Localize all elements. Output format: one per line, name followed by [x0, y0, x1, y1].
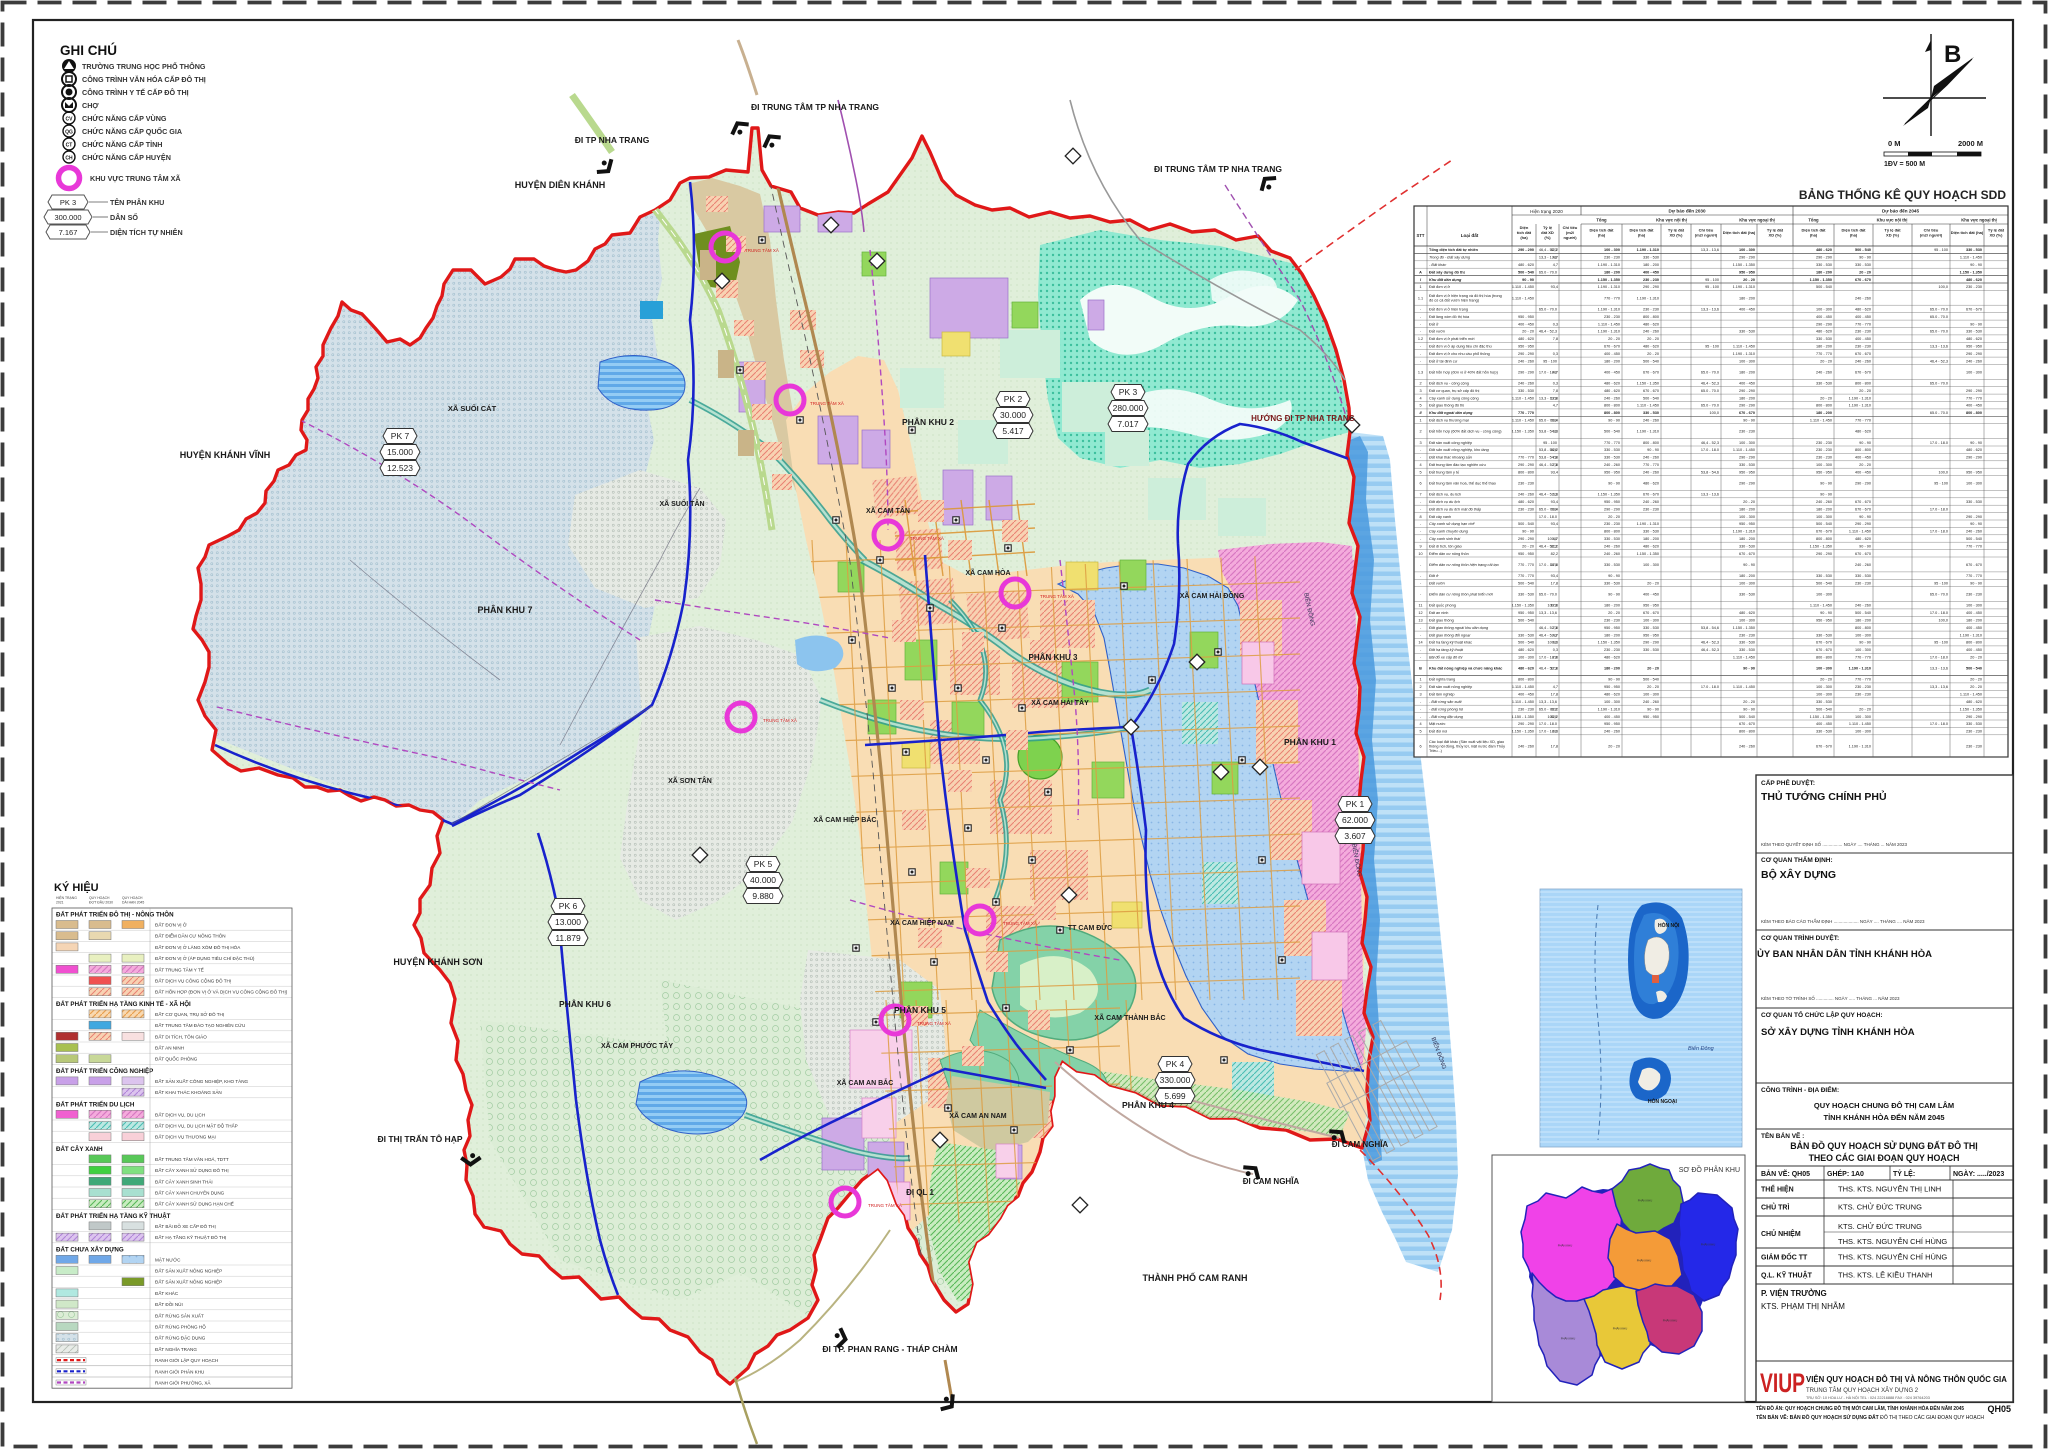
svg-text:480 - 620: 480 - 620 [1518, 648, 1534, 652]
svg-text:20 - 20: 20 - 20 [1820, 359, 1832, 363]
svg-text:400 - 450: 400 - 450 [1855, 456, 1871, 460]
svg-text:240 - 260: 240 - 260 [1604, 396, 1620, 400]
svg-text:1.190 - 1.310: 1.190 - 1.310 [1733, 530, 1755, 534]
svg-text:500 - 540: 500 - 540 [1643, 396, 1659, 400]
svg-text:Dự báo đến 2030: Dự báo đến 2030 [1668, 208, 1705, 214]
svg-text:- Đất rừng sản xuất: - Đất rừng sản xuất [1429, 700, 1463, 704]
svg-text:950 - 950: 950 - 950 [1739, 470, 1755, 474]
svg-text:46,4 - 52,3: 46,4 - 52,3 [1701, 648, 1719, 652]
svg-text:3: 3 [1419, 693, 1421, 697]
svg-text:1.190 - 1.310: 1.190 - 1.310 [1849, 744, 1871, 748]
svg-text:PHÂN KHU: PHÂN KHU [1561, 1336, 1575, 1341]
svg-text:0,3: 0,3 [1553, 430, 1558, 434]
svg-text:65.0 - 70.0: 65.0 - 70.0 [1539, 270, 1557, 274]
svg-text:THS. KTS. NGUYỄN CHÍ HÙNG: THS. KTS. NGUYỄN CHÍ HÙNG [1838, 1253, 1947, 1262]
svg-text:(ha): (ha) [1810, 233, 1818, 238]
svg-text:480 - 620: 480 - 620 [1966, 337, 1982, 341]
svg-text:17,8: 17,8 [1551, 604, 1558, 608]
svg-text:65.0 - 70.0: 65.0 - 70.0 [1701, 389, 1719, 393]
svg-text:65.0 - 70.0: 65.0 - 70.0 [1539, 307, 1557, 311]
svg-text:90 - 90: 90 - 90 [1522, 530, 1534, 534]
svg-text:800 - 800: 800 - 800 [1966, 411, 1982, 415]
svg-text:ĐẤT CÂY XANH CHUYÊN DỤNG: ĐẤT CÂY XANH CHUYÊN DỤNG [155, 1189, 225, 1196]
svg-text:PHÂN KHU 7: PHÂN KHU 7 [477, 604, 532, 615]
svg-text:TÊN BẢN VẼ :: TÊN BẢN VẼ : [1761, 1131, 1804, 1140]
svg-text:800 - 800: 800 - 800 [1604, 411, 1620, 415]
svg-text:950 - 950: 950 - 950 [1816, 618, 1832, 622]
svg-text:230 - 230: 230 - 230 [1518, 507, 1534, 511]
svg-text:1.110 - 1.450: 1.110 - 1.450 [1733, 448, 1755, 452]
svg-text:1.110 - 1.450: 1.110 - 1.450 [1512, 285, 1534, 289]
svg-text:20 - 20: 20 - 20 [1970, 656, 1982, 660]
svg-text:Các loại đất khác (Sản xuất vậ: Các loại đất khác (Sản xuất vật liệu XD,… [1429, 740, 1504, 744]
svg-text:53,8 - 54,6: 53,8 - 54,6 [1701, 626, 1719, 630]
svg-text:ĐẤT PHÁT TRIỂN CÔNG NGHIỆP: ĐẤT PHÁT TRIỂN CÔNG NGHIỆP [56, 1067, 153, 1075]
svg-text:HUYỆN KHÁNH SƠN: HUYỆN KHÁNH SƠN [393, 956, 482, 967]
svg-text:240 - 260: 240 - 260 [1518, 359, 1534, 363]
svg-text:330 - 530: 330 - 530 [1643, 256, 1659, 260]
svg-text:KTS. CHỬ ĐỨC TRUNG: KTS. CHỬ ĐỨC TRUNG [1838, 1203, 1922, 1212]
svg-text:Điểm dân cư nông thôn hiện trạ: Điểm dân cư nông thôn hiện trạng cải tạo [1429, 563, 1499, 567]
svg-text:180 - 200: 180 - 200 [1739, 296, 1755, 300]
svg-text:500 - 540: 500 - 540 [1518, 641, 1534, 645]
svg-text:ĐẤT TRUNG TÂM ĐÀO TẠO NGHIÊN C: ĐẤT TRUNG TÂM ĐÀO TẠO NGHIÊN CỨU [155, 1021, 245, 1028]
svg-text:100,0: 100,0 [1938, 470, 1948, 474]
svg-text:290 - 290: 290 - 290 [1518, 248, 1534, 252]
svg-text:PHÂN KHU 1: PHÂN KHU 1 [1284, 736, 1336, 747]
svg-text:480 - 620: 480 - 620 [1643, 544, 1659, 548]
svg-text:480 - 620: 480 - 620 [1604, 656, 1620, 660]
svg-text:670 - 670: 670 - 670 [1816, 648, 1832, 652]
svg-text:TRUNG TÂM XÃ: TRUNG TÂM XÃ [910, 535, 944, 541]
svg-text:400 - 450: 400 - 450 [1643, 270, 1659, 274]
svg-text:950 - 950: 950 - 950 [1518, 315, 1534, 319]
svg-text:CÔNG TRÌNH VĂN HÓA CẤP ĐÔ THỊ: CÔNG TRÌNH VĂN HÓA CẤP ĐÔ THỊ [82, 74, 206, 84]
svg-text:950 - 950: 950 - 950 [1643, 604, 1659, 608]
svg-text:330.000: 330.000 [1160, 1075, 1191, 1085]
svg-text:6: 6 [1419, 744, 1421, 748]
svg-text:Đất di tích, tôn giáo: Đất di tích, tôn giáo [1429, 544, 1462, 548]
svg-text:ĐẤT DỊCH VỤ, DU LỊCH MẬT ĐỘ TH: ĐẤT DỊCH VỤ, DU LỊCH MẬT ĐỘ THẤP [155, 1123, 238, 1129]
svg-text:240 - 260: 240 - 260 [1604, 463, 1620, 467]
svg-text:95 - 100: 95 - 100 [1934, 581, 1948, 585]
svg-text:230 - 230: 230 - 230 [1816, 456, 1832, 460]
svg-text:Đất đơn vị ở cho nhu cầu phổ t: Đất đơn vị ở cho nhu cầu phổ thông [1429, 352, 1490, 356]
svg-text:A: A [1419, 270, 1422, 274]
svg-text:HUYỆN DIÊN KHÁNH: HUYỆN DIÊN KHÁNH [515, 179, 606, 190]
svg-text:330 - 530: 330 - 530 [1855, 574, 1871, 578]
svg-text:180 - 200: 180 - 200 [1739, 537, 1755, 541]
svg-text:đó có cả đất vườn hiện trạng): đó có cả đất vườn hiện trạng) [1429, 299, 1480, 303]
svg-text:Khu vực nội thị: Khu vực nội thị [1877, 218, 1908, 223]
svg-text:1.190 - 1.310: 1.190 - 1.310 [1637, 296, 1659, 300]
svg-text:Hiện trạng 2020: Hiện trạng 2020 [1530, 209, 1563, 214]
svg-text:- Đất khác: - Đất khác [1429, 263, 1446, 267]
svg-text:290 - 290: 290 - 290 [1604, 507, 1620, 511]
svg-text:Tổng: Tổng [1808, 218, 1819, 223]
svg-text:90 - 90: 90 - 90 [1970, 581, 1982, 585]
svg-text:230 - 230: 230 - 230 [1518, 707, 1534, 711]
svg-text:330 - 530: 330 - 530 [1966, 500, 1982, 504]
svg-text:2: 2 [1419, 430, 1421, 434]
svg-text:Đất dịch vụ, du lịch: Đất dịch vụ, du lịch [1429, 493, 1461, 497]
svg-text:100 - 300: 100 - 300 [1604, 248, 1620, 252]
svg-text:1.190 - 1.310: 1.190 - 1.310 [1637, 248, 1659, 252]
svg-text:93,4: 93,4 [1551, 507, 1558, 511]
svg-text:180 - 200: 180 - 200 [1739, 507, 1755, 511]
svg-text:PK 2: PK 2 [1004, 394, 1023, 404]
svg-text:500 - 540: 500 - 540 [1643, 359, 1659, 363]
svg-text:500 - 540: 500 - 540 [1604, 430, 1620, 434]
svg-text:1.150 - 1.350: 1.150 - 1.350 [1637, 552, 1659, 556]
svg-text:290 - 290: 290 - 290 [1739, 256, 1755, 260]
svg-text:ĐẤT PHÁT TRIỂN HẠ TẦNG KINH TẾ: ĐẤT PHÁT TRIỂN HẠ TẦNG KINH TẾ - XÃ HỘI [56, 1000, 191, 1008]
svg-text:100 - 300: 100 - 300 [1855, 730, 1871, 734]
svg-text:ĐẤT HỖN HỢP (ĐƠN VỊ Ở VÀ DỊCH: ĐẤT HỖN HỢP (ĐƠN VỊ Ở VÀ DỊCH VỤ CÔNG CỘ… [155, 989, 288, 995]
svg-text:290 - 290: 290 - 290 [1966, 456, 1982, 460]
svg-text:ĐI CAM NGHĨA: ĐI CAM NGHĨA [1243, 1177, 1300, 1186]
svg-text:17.0 - 18.0: 17.0 - 18.0 [1701, 448, 1719, 452]
svg-text:1.190 - 1.310: 1.190 - 1.310 [1598, 263, 1620, 267]
svg-text:240 - 260: 240 - 260 [1643, 456, 1659, 460]
svg-text:Đất đơn vị ở: Đất đơn vị ở [1429, 285, 1451, 289]
svg-text:ĐỢT ĐẦU 2030: ĐỢT ĐẦU 2030 [89, 901, 113, 905]
svg-text:500 - 540: 500 - 540 [1966, 667, 1982, 671]
svg-text:XÃ CAM THÀNH BẮC: XÃ CAM THÀNH BẮC [1094, 1013, 1165, 1022]
svg-text:15.000: 15.000 [387, 447, 413, 457]
svg-text:CT: CT [66, 143, 73, 149]
svg-text:240 - 260: 240 - 260 [1518, 382, 1534, 386]
svg-text:2021: 2021 [56, 901, 64, 905]
svg-text:17,8: 17,8 [1551, 744, 1558, 748]
svg-text:290 - 290: 290 - 290 [1518, 370, 1534, 374]
svg-text:950 - 950: 950 - 950 [1604, 626, 1620, 630]
svg-text:400 - 450: 400 - 450 [1604, 352, 1620, 356]
svg-text:330 - 530: 330 - 530 [1643, 648, 1659, 652]
svg-text:Đất nghĩa trang: Đất nghĩa trang [1429, 678, 1455, 682]
svg-text:800 - 800: 800 - 800 [1739, 730, 1755, 734]
svg-text:1.190 - 1.310: 1.190 - 1.310 [1733, 352, 1755, 356]
svg-text:HÒN NGOẠI: HÒN NGOẠI [1648, 1097, 1678, 1105]
svg-text:290 - 290: 290 - 290 [1739, 456, 1755, 460]
svg-text:ĐI QL 1: ĐI QL 1 [906, 1188, 934, 1197]
svg-text:Đất đơn vị ở hiện trạng và đô: Đất đơn vị ở hiện trạng và đô thị hóa (t… [1429, 294, 1502, 298]
svg-text:90 - 90: 90 - 90 [1608, 574, 1620, 578]
svg-text:1.150 - 1.350: 1.150 - 1.350 [1512, 604, 1534, 608]
svg-text:ĐẤT TRUNG TÂM Y TẾ: ĐẤT TRUNG TÂM Y TẾ [155, 966, 204, 972]
svg-text:1.150 - 1.350: 1.150 - 1.350 [1810, 278, 1832, 282]
svg-text:670 - 670: 670 - 670 [1643, 370, 1659, 374]
svg-text:Cây xanh sử dụng hạn chế: Cây xanh sử dụng hạn chế [1429, 522, 1475, 526]
svg-text:Đất ở tái định cư: Đất ở tái định cư [1429, 359, 1458, 363]
svg-text:1.110 - 1.450: 1.110 - 1.450 [1512, 419, 1534, 423]
svg-text:Dự báo đến 2045: Dự báo đến 2045 [1882, 208, 1919, 214]
svg-text:240 - 260: 240 - 260 [1855, 359, 1871, 363]
svg-text:330 - 530: 330 - 530 [1643, 626, 1659, 630]
svg-text:290 - 290: 290 - 290 [1739, 404, 1755, 408]
svg-text:90 - 90: 90 - 90 [1608, 419, 1620, 423]
svg-text:1.3: 1.3 [1418, 370, 1423, 374]
svg-text:230 - 230: 230 - 230 [1604, 522, 1620, 526]
svg-text:1.150 - 1.350: 1.150 - 1.350 [1810, 544, 1832, 548]
svg-text:90 - 90: 90 - 90 [1608, 678, 1620, 682]
svg-text:STT: STT [1417, 233, 1425, 238]
svg-text:XÃ CAM HIỆP BẮC: XÃ CAM HIỆP BẮC [814, 815, 877, 824]
svg-text:100 - 300: 100 - 300 [1643, 563, 1659, 567]
svg-text:PK 1: PK 1 [1346, 799, 1365, 809]
svg-text:290 - 290: 290 - 290 [1518, 537, 1534, 541]
svg-text:90 - 90: 90 - 90 [1970, 263, 1982, 267]
svg-text:950 - 950: 950 - 950 [1966, 344, 1982, 348]
svg-text:ỦY BAN NHÂN DÂN TỈNH KHÁNH HÒA: ỦY BAN NHÂN DÂN TỈNH KHÁNH HÒA [1757, 948, 1932, 960]
svg-text:TRUNG TÂM QUY HOẠCH XÂY DỰNG 2: TRUNG TÂM QUY HOẠCH XÂY DỰNG 2 [1806, 1387, 1919, 1394]
svg-text:ĐẤT CÂY XANH SỬ DỤNG HẠN CHẾ: ĐẤT CÂY XANH SỬ DỤNG HẠN CHẾ [155, 1201, 234, 1207]
svg-text:0,3: 0,3 [1553, 648, 1558, 652]
svg-text:THỦ TƯỚNG CHÍNH PHỦ: THỦ TƯỚNG CHÍNH PHỦ [1761, 790, 1887, 803]
svg-text:480 - 620: 480 - 620 [1604, 382, 1620, 386]
svg-text:Khu vực ngoại thị: Khu vực ngoại thị [1739, 218, 1775, 223]
svg-text:TRUNG TÂM XÃ: TRUNG TÂM XÃ [917, 1020, 951, 1026]
svg-text:ĐI THỊ TRẤN TÔ HẠP: ĐI THỊ TRẤN TÔ HẠP [378, 1133, 463, 1144]
svg-text:13,3 - 13,6: 13,3 - 13,6 [1930, 667, 1948, 671]
svg-text:670 - 670: 670 - 670 [1739, 411, 1755, 415]
svg-text:290 - 290: 290 - 290 [1518, 463, 1534, 467]
svg-text:4,7: 4,7 [1553, 633, 1558, 637]
svg-text:1.150 - 1.350: 1.150 - 1.350 [1733, 263, 1755, 267]
svg-text:Đất đơn vị ở áp dụng tiêu chí: Đất đơn vị ở áp dụng tiêu chí đặc thù [1429, 344, 1492, 348]
svg-text:KÈM THEO QUYẾT ĐỊNH SỐ .......: KÈM THEO QUYẾT ĐỊNH SỐ ................ … [1761, 841, 1907, 847]
svg-text:240 - 260: 240 - 260 [1816, 500, 1832, 504]
svg-text:950 - 950: 950 - 950 [1643, 715, 1659, 719]
svg-text:230 - 230: 230 - 230 [1855, 685, 1871, 689]
svg-text:240 - 260: 240 - 260 [1518, 493, 1534, 497]
svg-text:90 - 90: 90 - 90 [1820, 493, 1832, 497]
svg-text:20 - 20: 20 - 20 [1859, 463, 1871, 467]
svg-text:950 - 950: 950 - 950 [1739, 270, 1755, 274]
svg-text:ĐẤT QUỐC PHÒNG: ĐẤT QUỐC PHÒNG [155, 1056, 198, 1062]
svg-text:95 - 100: 95 - 100 [1705, 278, 1719, 282]
svg-text:330 - 530: 330 - 530 [1816, 574, 1832, 578]
svg-text:13,3 - 13,6: 13,3 - 13,6 [1701, 307, 1719, 311]
svg-text:PK 6: PK 6 [559, 901, 578, 911]
svg-text:180 - 200: 180 - 200 [1604, 633, 1620, 637]
svg-text:770 - 770: 770 - 770 [1518, 563, 1534, 567]
svg-text:950 - 950: 950 - 950 [1518, 611, 1534, 615]
svg-text:670 - 670: 670 - 670 [1739, 552, 1755, 556]
svg-text:90 - 90: 90 - 90 [1820, 611, 1832, 615]
svg-text:TRUNG TÂM XÃ: TRUNG TÂM XÃ [745, 247, 779, 253]
svg-text:1.110 - 1.450: 1.110 - 1.450 [1512, 396, 1534, 400]
svg-text:12.523: 12.523 [387, 463, 413, 473]
svg-text:XÃ CAM HIỆP NAM: XÃ CAM HIỆP NAM [890, 918, 954, 927]
svg-text:480 - 620: 480 - 620 [1643, 322, 1659, 326]
svg-text:90 - 90: 90 - 90 [1647, 448, 1659, 452]
svg-text:(ha): (ha) [1598, 233, 1606, 238]
svg-text:330 - 530: 330 - 530 [1518, 593, 1534, 597]
svg-text:7.167: 7.167 [59, 228, 78, 237]
svg-text:1.150 - 1.350: 1.150 - 1.350 [1810, 715, 1832, 719]
svg-text:65.0 - 70.0: 65.0 - 70.0 [1930, 411, 1948, 415]
svg-text:90 - 90: 90 - 90 [1859, 544, 1871, 548]
svg-text:7,8: 7,8 [1553, 626, 1558, 630]
svg-text:90 - 90: 90 - 90 [1743, 563, 1755, 567]
svg-text:400 - 450: 400 - 450 [1604, 715, 1620, 719]
svg-text:TRUNG TÂM XÃ: TRUNG TÂM XÃ [868, 1202, 902, 1208]
svg-text:290 - 290: 290 - 290 [1518, 722, 1534, 726]
svg-text:1.150 - 1.350: 1.150 - 1.350 [1598, 278, 1620, 282]
svg-text:480 - 620: 480 - 620 [1518, 667, 1534, 671]
svg-text:ĐẤT SẢN XUẤT CÔNG NGHIỆP, KHO: ĐẤT SẢN XUẤT CÔNG NGHIỆP, KHO TÀNG [155, 1077, 249, 1084]
svg-text:XD (%): XD (%) [1886, 233, 1900, 238]
svg-text:XÃ CAM PHƯỚC TÂY: XÃ CAM PHƯỚC TÂY [601, 1041, 673, 1050]
svg-text:DÀI HẠN 2045: DÀI HẠN 2045 [122, 901, 144, 905]
svg-text:Đất giao thông đối ngoại: Đất giao thông đối ngoại [1429, 633, 1470, 637]
svg-text:Khu đất nông nghiệp và chức nă: Khu đất nông nghiệp và chức năng khác [1429, 667, 1502, 671]
svg-text:TRỤ SỞ: 10 HOA LƯ - HÀ NỘI T: TRỤ SỞ: 10 HOA LƯ - HÀ NỘI TEL : 024 222… [1806, 1395, 1930, 1400]
svg-text:7,8: 7,8 [1553, 456, 1558, 460]
svg-text:BẢN ĐỒ QUY HOẠCH SỬ DỤNG ĐẤT Đ: BẢN ĐỒ QUY HOẠCH SỬ DỤNG ĐẤT ĐÔ THỊ [1790, 1140, 1977, 1151]
svg-text:(m2/ người): (m2/ người) [1920, 233, 1943, 238]
svg-text:XÃ CAM HẢI ĐÔNG: XÃ CAM HẢI ĐÔNG [1180, 591, 1245, 600]
svg-text:1.150 - 1.350: 1.150 - 1.350 [1960, 707, 1982, 711]
svg-text:90 - 90: 90 - 90 [1859, 441, 1871, 445]
svg-text:500 - 540: 500 - 540 [1643, 678, 1659, 682]
svg-text:PHÂN KHU: PHÂN KHU [1663, 1318, 1677, 1323]
svg-text:770 - 770: 770 - 770 [1855, 678, 1871, 682]
svg-text:Khu đất ngoài dân dụng: Khu đất ngoài dân dụng [1429, 411, 1473, 415]
svg-text:400 - 450: 400 - 450 [1855, 315, 1871, 319]
svg-text:0,3: 0,3 [1553, 382, 1558, 386]
svg-text:330 - 530: 330 - 530 [1816, 337, 1832, 341]
svg-text:ĐẤT KHAI THÁC KHOÁNG SẢN: ĐẤT KHAI THÁC KHOÁNG SẢN [155, 1089, 222, 1095]
svg-text:1.190 - 1.310: 1.190 - 1.310 [1637, 522, 1659, 526]
svg-text:NGÀY: ...../2023: NGÀY: ...../2023 [1953, 1169, 2004, 1178]
svg-text:500 - 540: 500 - 540 [1518, 270, 1534, 274]
svg-text:770 - 770: 770 - 770 [1966, 396, 1982, 400]
svg-text:330 - 530: 330 - 530 [1739, 641, 1755, 645]
svg-text:PK 4: PK 4 [1166, 1059, 1185, 1069]
svg-text:100 - 300: 100 - 300 [1855, 715, 1871, 719]
svg-text:230 - 230: 230 - 230 [1518, 481, 1534, 485]
svg-text:500 - 540: 500 - 540 [1855, 611, 1871, 615]
svg-text:5: 5 [1419, 730, 1421, 734]
svg-text:20 - 20: 20 - 20 [1647, 581, 1659, 585]
svg-text:20 - 20: 20 - 20 [1608, 611, 1620, 615]
svg-text:17.0 - 18.0: 17.0 - 18.0 [1930, 507, 1948, 511]
svg-text:800 - 800: 800 - 800 [1855, 382, 1871, 386]
svg-text:20 - 20: 20 - 20 [1647, 352, 1659, 356]
svg-text:Đất khai thác khoáng sản: Đất khai thác khoáng sản [1429, 456, 1472, 460]
svg-text:65.0 - 70.0: 65.0 - 70.0 [1539, 593, 1557, 597]
svg-text:4,7: 4,7 [1553, 404, 1558, 408]
svg-text:180 - 200: 180 - 200 [1739, 370, 1755, 374]
svg-text:Cây xanh sinh thái: Cây xanh sinh thái [1429, 537, 1460, 541]
svg-text:90 - 90: 90 - 90 [1859, 641, 1871, 645]
svg-text:0 M: 0 M [1888, 139, 1901, 148]
svg-text:93,4: 93,4 [1551, 522, 1558, 526]
svg-text:100 - 300: 100 - 300 [1816, 463, 1832, 467]
svg-text:TỈNH KHÁNH HÒA ĐẾN NĂM 2045: TỈNH KHÁNH HÒA ĐẾN NĂM 2045 [1824, 1112, 1945, 1122]
svg-text:13,3 - 13,6: 13,3 - 13,6 [1539, 700, 1557, 704]
svg-text:17,8: 17,8 [1551, 563, 1558, 567]
svg-text:480 - 620: 480 - 620 [1518, 500, 1534, 504]
svg-text:500 - 540: 500 - 540 [1816, 707, 1832, 711]
svg-text:100 - 300: 100 - 300 [1816, 515, 1832, 519]
svg-text:480 - 620: 480 - 620 [1855, 537, 1871, 541]
svg-text:480 - 620: 480 - 620 [1855, 430, 1871, 434]
svg-text:THS. KTS. LÊ KIỀU THANH: THS. KTS. LÊ KIỀU THANH [1838, 1270, 1932, 1280]
svg-text:Đất đồi núi: Đất đồi núi [1429, 730, 1447, 734]
svg-text:CHỦ NHIỆM: CHỦ NHIỆM [1761, 1229, 1801, 1238]
svg-text:1.110 - 1.450: 1.110 - 1.450 [1512, 685, 1534, 689]
svg-text:PHÂN KHU 4: PHÂN KHU 4 [1122, 1099, 1174, 1110]
svg-text:100,0: 100,0 [1938, 285, 1948, 289]
svg-text:17.0 - 18.0: 17.0 - 18.0 [1539, 515, 1557, 519]
svg-text:17.0 - 18.0: 17.0 - 18.0 [1930, 722, 1948, 726]
svg-text:770 - 770: 770 - 770 [1966, 574, 1982, 578]
svg-text:3: 3 [1419, 441, 1421, 445]
svg-text:(ha): (ha) [1850, 233, 1858, 238]
svg-text:330 - 530: 330 - 530 [1966, 330, 1982, 334]
svg-text:290 - 290: 290 - 290 [1643, 285, 1659, 289]
svg-text:230 - 230: 230 - 230 [1816, 441, 1832, 445]
svg-text:Tổng: Tổng [1596, 218, 1607, 223]
svg-text:ĐẤT ĐIỂM DÂN CƯ NÔNG THÔN: ĐẤT ĐIỂM DÂN CƯ NÔNG THÔN [155, 933, 226, 939]
svg-text:800 - 800: 800 - 800 [1643, 315, 1659, 319]
svg-text:MẶT NƯỚC: MẶT NƯỚC [155, 1256, 181, 1262]
svg-text:480 - 620: 480 - 620 [1966, 700, 1982, 704]
svg-text:Đất hỗn hợp (đơn vị ở 40% đất: Đất hỗn hợp (đơn vị ở 40% đất hỗn hợp) [1429, 369, 1499, 374]
svg-text:VIUP: VIUP [1760, 1368, 1805, 1398]
svg-text:Đất an ninh: Đất an ninh [1429, 611, 1448, 615]
svg-text:230 - 230: 230 - 230 [1643, 307, 1659, 311]
svg-text:20 - 20: 20 - 20 [1608, 744, 1620, 748]
svg-text:65.0 - 70.0: 65.0 - 70.0 [1930, 593, 1948, 597]
svg-text:670 - 670: 670 - 670 [1604, 344, 1620, 348]
svg-text:người): người) [1563, 235, 1577, 240]
svg-text:100 - 300: 100 - 300 [1518, 656, 1534, 660]
svg-text:240 - 260: 240 - 260 [1604, 544, 1620, 548]
svg-text:480 - 620: 480 - 620 [1643, 344, 1659, 348]
svg-text:DÂN SỐ: DÂN SỐ [110, 212, 138, 222]
svg-text:800 - 800: 800 - 800 [1518, 470, 1534, 474]
svg-text:500 - 540: 500 - 540 [1816, 285, 1832, 289]
svg-text:Cây xanh sử dụng công cộng: Cây xanh sử dụng công cộng [1429, 396, 1479, 400]
svg-text:Đất hạ tầng kỹ thuật khác: Đất hạ tầng kỹ thuật khác [1429, 641, 1472, 645]
svg-text:TÊN BẢN VẼ: BẢN ĐỒ QUY HOẠCH S: TÊN BẢN VẼ: BẢN ĐỒ QUY HOẠCH SỬ DỤNG ĐẤT… [1756, 1413, 1984, 1421]
svg-text:400 - 450: 400 - 450 [1966, 611, 1982, 615]
svg-text:XD (%): XD (%) [1670, 233, 1684, 238]
svg-text:65.0 - 70.0: 65.0 - 70.0 [1701, 404, 1719, 408]
svg-text:100 - 300: 100 - 300 [1855, 648, 1871, 652]
svg-text:46,4 - 52,3: 46,4 - 52,3 [1701, 641, 1719, 645]
svg-text:950 - 950: 950 - 950 [1739, 522, 1755, 526]
svg-text:93,4: 93,4 [1551, 500, 1558, 504]
svg-text:CÔNG TRÌNH Y TẾ CẤP ĐÔ THỊ: CÔNG TRÌNH Y TẾ CẤP ĐÔ THỊ [82, 87, 189, 97]
svg-text:95 - 100: 95 - 100 [1934, 481, 1948, 485]
svg-text:9: 9 [1419, 544, 1421, 548]
svg-text:180 - 200: 180 - 200 [1739, 574, 1755, 578]
svg-text:QUY HOẠCH: QUY HOẠCH [89, 896, 110, 900]
svg-text:ĐẤT CÂY XANH: ĐẤT CÂY XANH [56, 1146, 103, 1153]
svg-text:Q.L. KỸ THUẬT: Q.L. KỸ THUẬT [1761, 1271, 1813, 1280]
svg-text:XÃ CAM AN BẮC: XÃ CAM AN BẮC [837, 1078, 894, 1087]
svg-text:1.110 - 1.450: 1.110 - 1.450 [1733, 344, 1755, 348]
svg-text:Mặt nước: Mặt nước [1429, 722, 1446, 726]
svg-text:100 - 300: 100 - 300 [1739, 581, 1755, 585]
svg-text:13: 13 [1418, 618, 1422, 622]
svg-text:4,7: 4,7 [1553, 263, 1558, 267]
